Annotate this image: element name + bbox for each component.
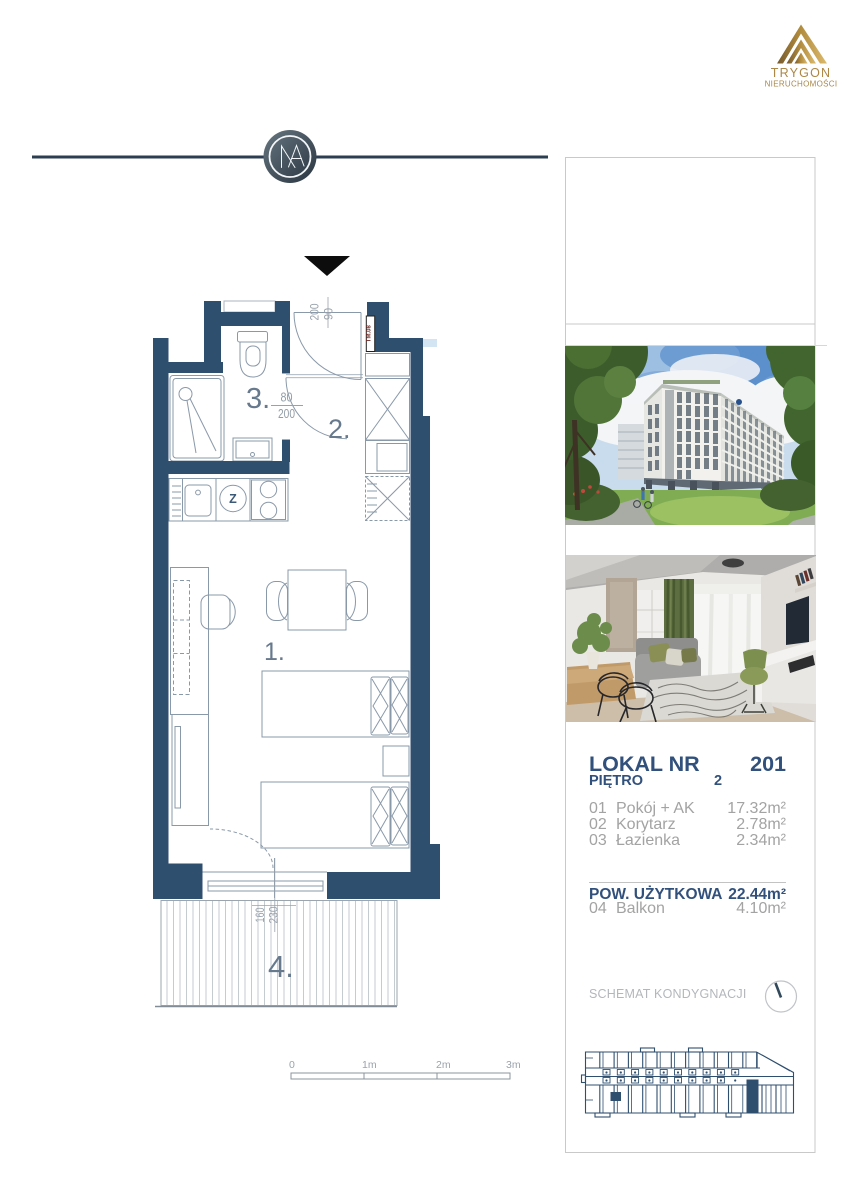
svg-text:TM.08: TM.08 [367, 325, 373, 343]
svg-text:160: 160 [255, 908, 267, 923]
svg-text:2m: 2m [436, 1059, 451, 1071]
svg-text:80: 80 [281, 391, 293, 405]
svg-text:TRYGON: TRYGON [771, 66, 831, 80]
svg-text:NIERUCHOMOŚCI: NIERUCHOMOŚCI [765, 80, 838, 89]
svg-text:1m: 1m [362, 1059, 377, 1071]
svg-text:200: 200 [310, 304, 322, 321]
svg-text:3.: 3. [246, 383, 270, 415]
svg-text:200: 200 [278, 407, 295, 421]
svg-text:3m: 3m [506, 1059, 521, 1071]
svg-text:230: 230 [269, 907, 281, 924]
svg-text:4.: 4. [268, 949, 294, 984]
svg-text:1.: 1. [264, 638, 285, 666]
svg-text:90: 90 [324, 308, 336, 320]
svg-text:0: 0 [289, 1059, 295, 1071]
svg-text:2.: 2. [328, 414, 351, 444]
svg-text:Z: Z [229, 492, 237, 506]
